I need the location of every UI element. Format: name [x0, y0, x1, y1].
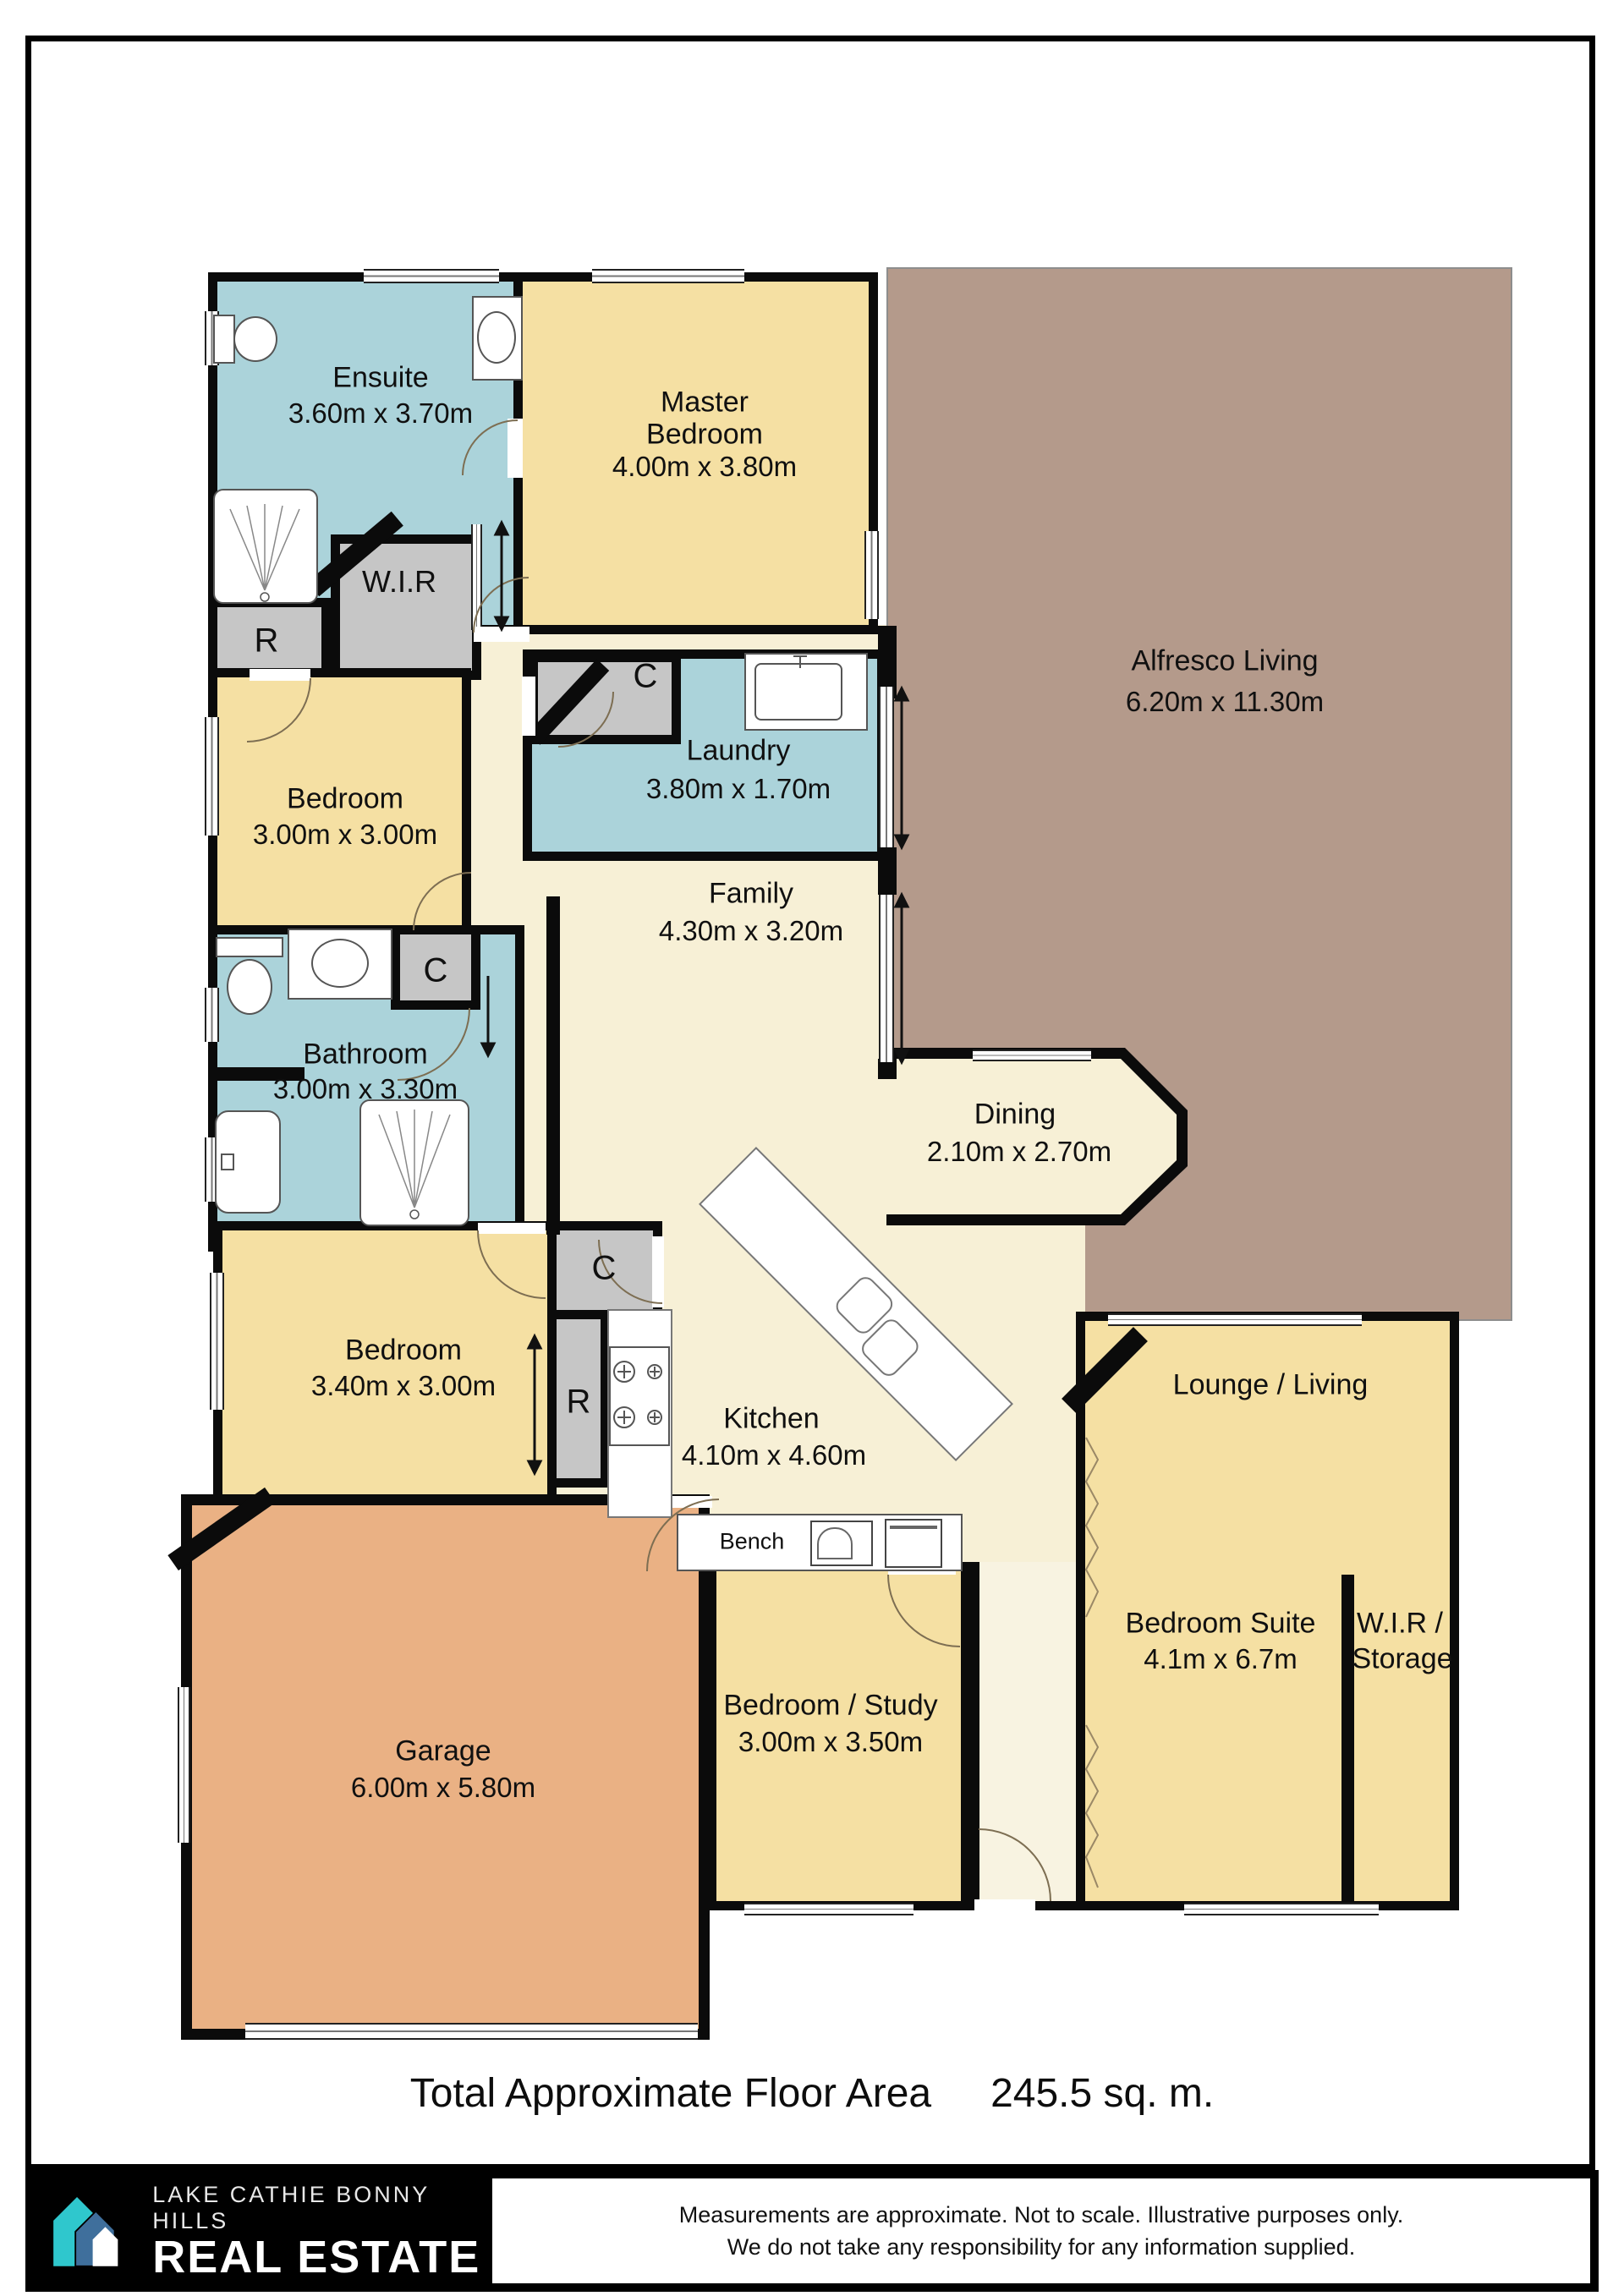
disclaimer-box: Measurements are approximate. Not to sca…: [489, 2175, 1594, 2287]
marker-wir-ensuite: W.I.R: [362, 564, 436, 600]
label-suite: Bedroom Suite: [1126, 1608, 1316, 1641]
label-alfresco: Alfresco Living: [1131, 645, 1318, 678]
label-kitchen-dims: 4.10m x 4.60m: [682, 1439, 866, 1471]
label-wir-storage-2: Storage: [1352, 1643, 1452, 1676]
marker-closet-laundry: C: [634, 658, 658, 696]
slider-arrows: [482, 523, 908, 1473]
label-lounge: Lounge / Living: [1173, 1369, 1369, 1402]
floor-area-value: 245.5 sq. m.: [990, 2070, 1214, 2117]
label-master: Master: [661, 386, 749, 419]
plan-annotations: [0, 0, 1624, 2296]
label-bathroom-dims: 3.00m x 3.30m: [273, 1073, 458, 1105]
marker-robe-kitchen: R: [567, 1384, 591, 1422]
label-wir-storage: W.I.R /: [1357, 1608, 1443, 1641]
house-logo-icon: [44, 2184, 130, 2277]
page-title: Total Approximate Floor Area: [410, 2070, 931, 2117]
floor-plan-page: Ensuite 3.60m x 3.70m Master Bedroom 4.0…: [0, 0, 1624, 2296]
disclaimer-line-2: We do not take any responsibility for an…: [727, 2231, 1355, 2263]
label-bedroom2: Bedroom: [287, 783, 403, 816]
agency-logo: LAKE CATHIE BONNY HILLS REAL ESTATE: [25, 2170, 489, 2292]
brand-text: LAKE CATHIE BONNY HILLS REAL ESTATE: [152, 2182, 489, 2280]
label-master-dims: 4.00m x 3.80m: [612, 451, 797, 483]
label-bathroom: Bathroom: [303, 1038, 427, 1071]
shower-sprays: [230, 504, 450, 1219]
label-ensuite: Ensuite: [332, 362, 428, 395]
label-laundry: Laundry: [687, 735, 791, 768]
brand-line-2: REAL ESTATE: [152, 2234, 489, 2280]
label-dining: Dining: [974, 1099, 1056, 1132]
label-garage-dims: 6.00m x 5.80m: [351, 1772, 535, 1804]
label-garage: Garage: [395, 1735, 491, 1768]
stove-burners: [614, 1362, 661, 1427]
label-bedroom3-dims: 3.40m x 3.00m: [311, 1370, 496, 1402]
label-ensuite-dims: 3.60m x 3.70m: [288, 397, 473, 430]
label-bedroom-study-dims: 3.00m x 3.50m: [738, 1726, 923, 1758]
marker-bench: Bench: [720, 1529, 785, 1555]
label-master-2: Bedroom: [646, 419, 763, 452]
label-bedroom3: Bedroom: [345, 1334, 462, 1367]
label-alfresco-dims: 6.20m x 11.30m: [1126, 686, 1324, 718]
marker-closet-bathroom: C: [424, 952, 448, 990]
label-laundry-dims: 3.80m x 1.70m: [646, 773, 831, 805]
title-row: Total Approximate Floor Area 245.5 sq. m…: [0, 2070, 1624, 2117]
label-bedroom-study: Bedroom / Study: [723, 1690, 937, 1723]
label-family-dims: 4.30m x 3.20m: [659, 915, 843, 947]
marker-robe-ensuite: R: [255, 622, 279, 660]
label-suite-dims: 4.1m x 6.7m: [1144, 1643, 1298, 1675]
label-kitchen: Kitchen: [723, 1403, 819, 1436]
marker-closet-kitchen: C: [592, 1250, 617, 1288]
window-zigzags: [1086, 1438, 1098, 1888]
label-bedroom2-dims: 3.00m x 3.00m: [253, 819, 437, 851]
footer-bar: LAKE CATHIE BONNY HILLS REAL ESTATE Meas…: [25, 2170, 1599, 2292]
disclaimer-line-1: Measurements are approximate. Not to sca…: [679, 2199, 1403, 2231]
label-dining-dims: 2.10m x 2.70m: [927, 1136, 1111, 1168]
label-family: Family: [709, 878, 793, 911]
brand-line-1: LAKE CATHIE BONNY HILLS: [152, 2182, 489, 2234]
